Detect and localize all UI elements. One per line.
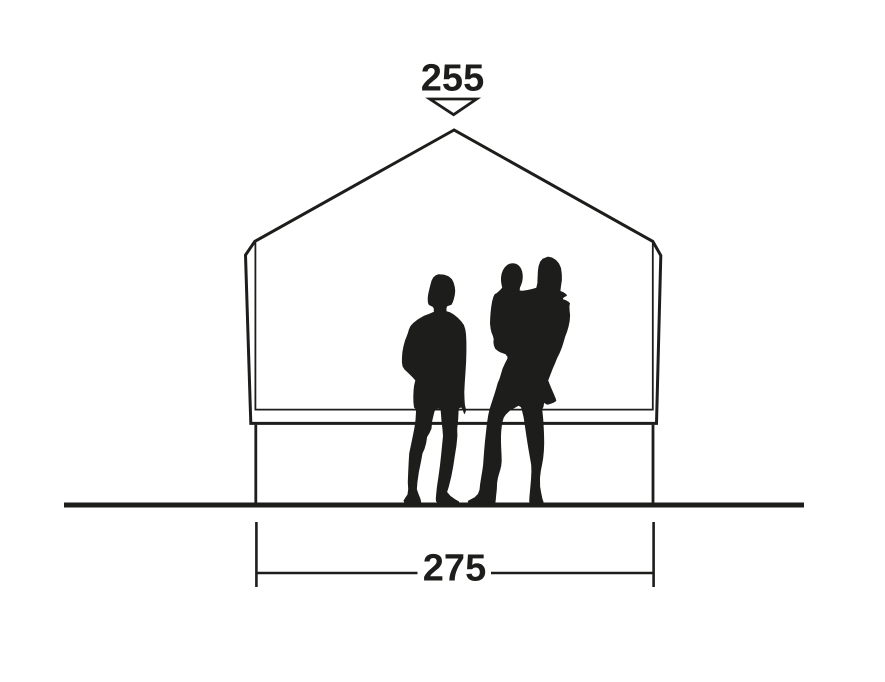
svg-text:255: 255 [421, 58, 484, 100]
svg-text:275: 275 [423, 548, 486, 590]
